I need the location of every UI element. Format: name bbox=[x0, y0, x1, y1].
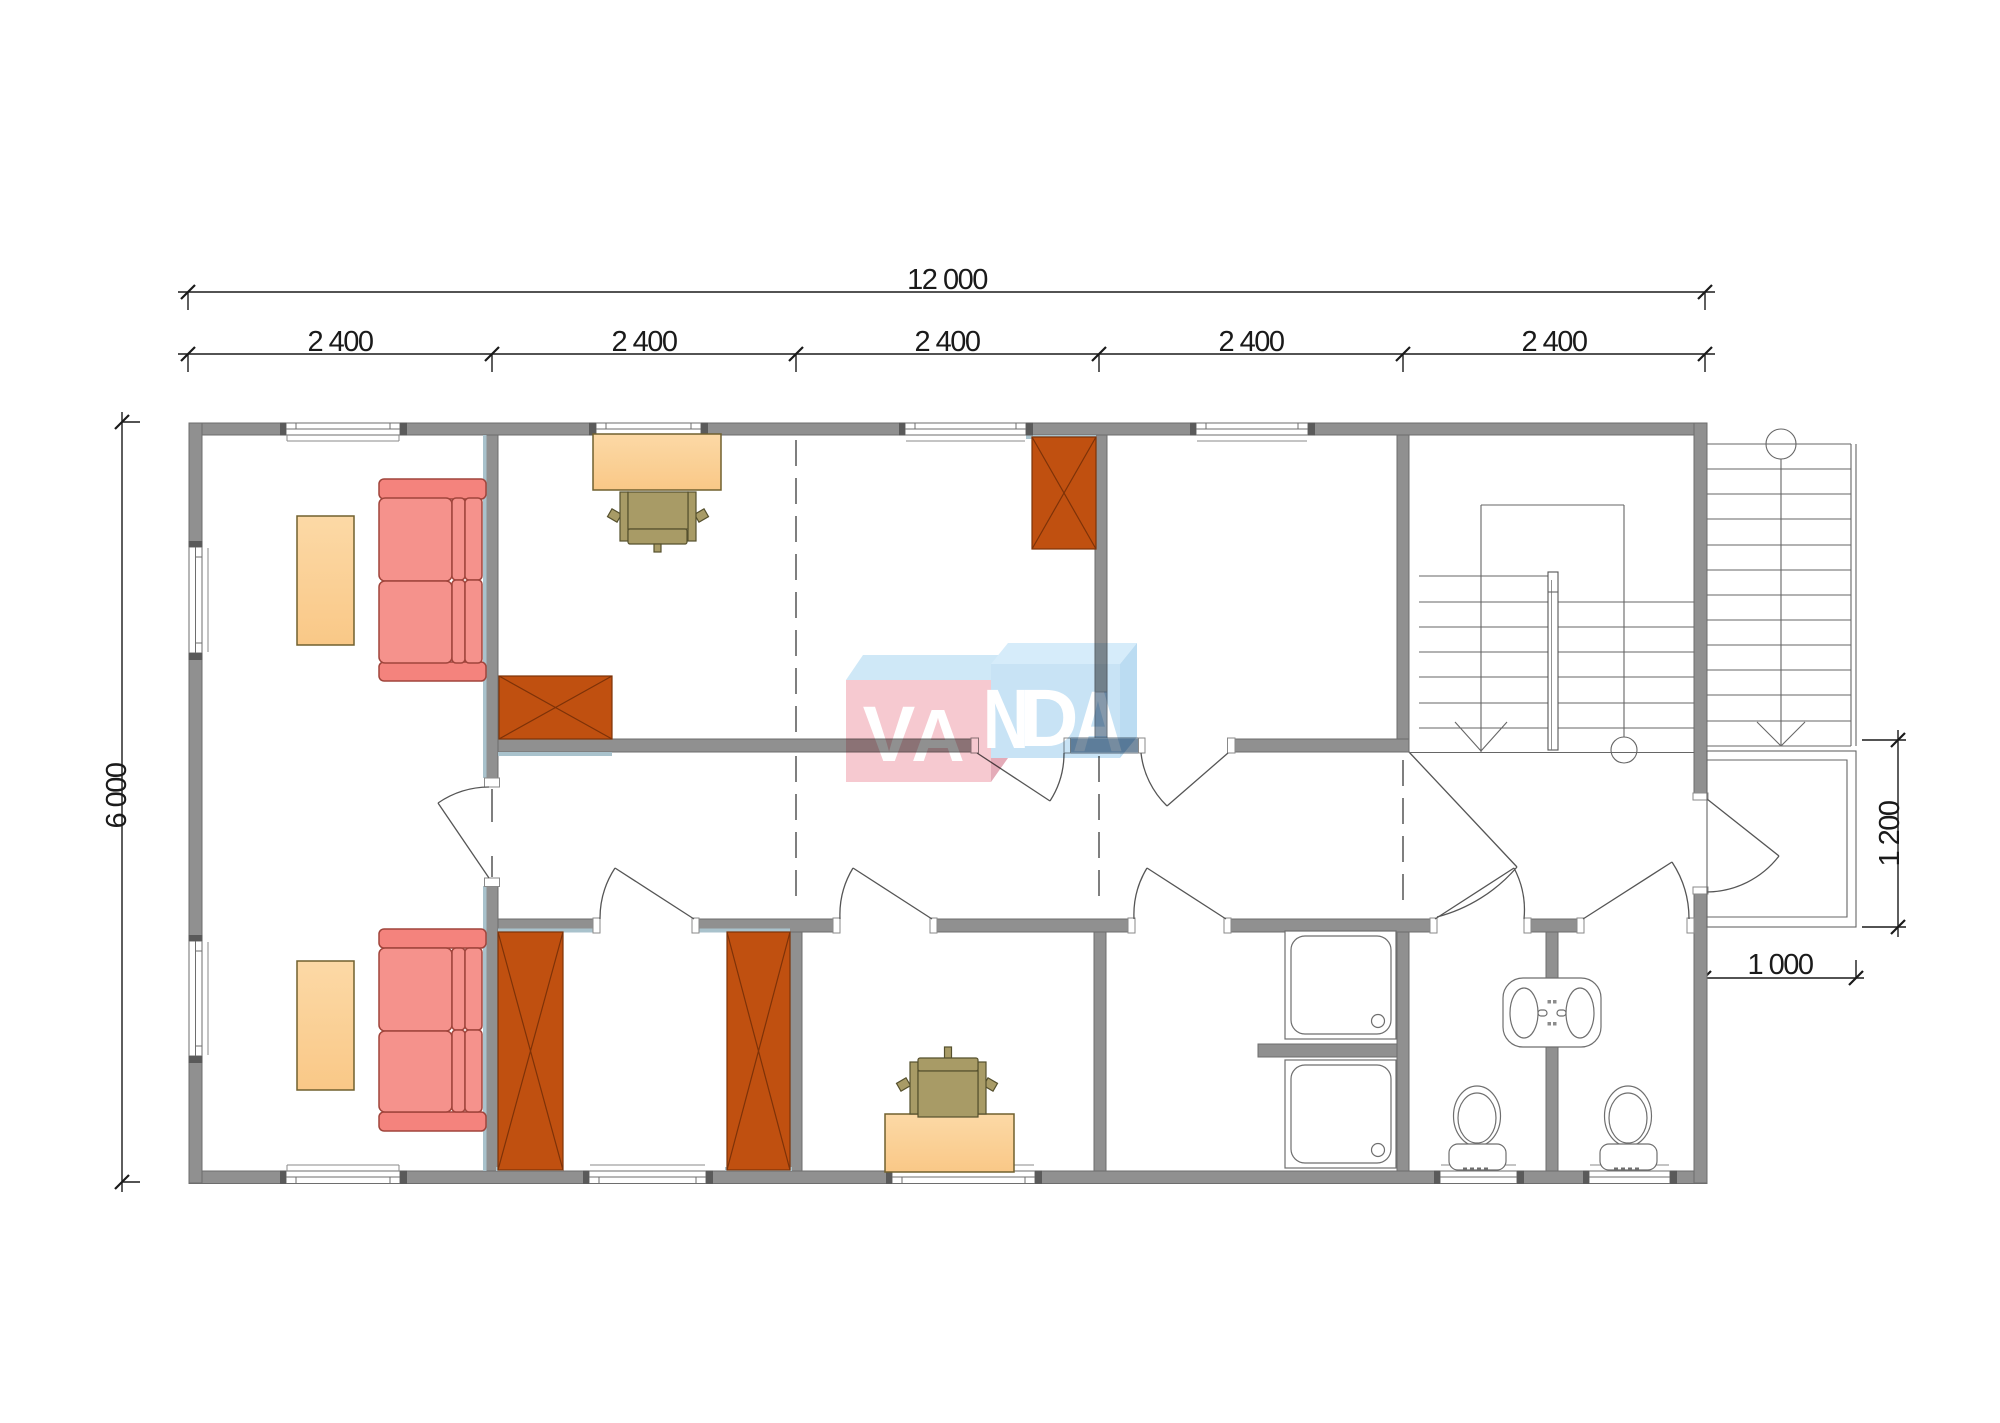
svg-text:1 000: 1 000 bbox=[1747, 949, 1812, 981]
svg-text:2 400: 2 400 bbox=[307, 326, 372, 358]
svg-text:2 400: 2 400 bbox=[1521, 326, 1586, 358]
svg-text:1 200: 1 200 bbox=[1874, 801, 1906, 866]
svg-text:2 400: 2 400 bbox=[611, 326, 676, 358]
svg-text:12 000: 12 000 bbox=[907, 264, 987, 296]
svg-text:2 400: 2 400 bbox=[1218, 326, 1283, 358]
svg-text:6 000: 6 000 bbox=[101, 763, 133, 828]
svg-text:2 400: 2 400 bbox=[914, 326, 979, 358]
